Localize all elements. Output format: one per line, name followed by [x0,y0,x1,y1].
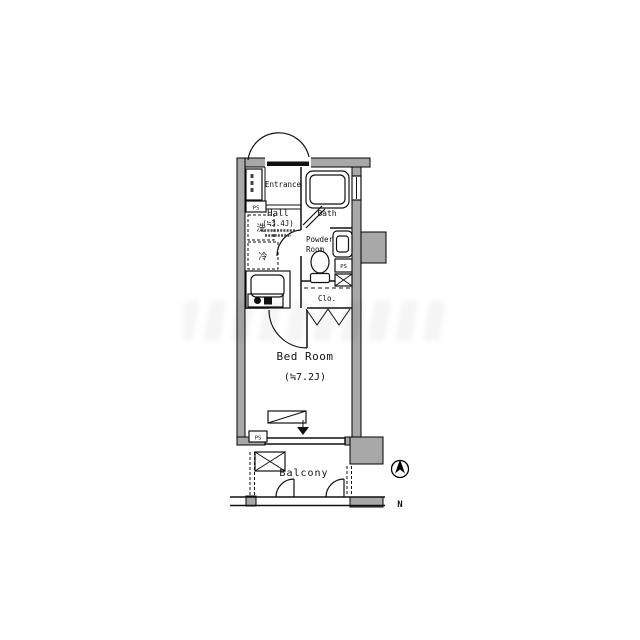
stove-burner-icon [254,297,261,304]
balcony-partition-left [276,479,294,497]
toilet-tank [311,274,330,283]
south-window [265,438,345,444]
bedroom-counter-diagonal [268,411,306,423]
closet-door-left [306,309,328,325]
bathtub-inner [310,175,345,204]
wall-left [237,158,245,445]
fridge-space-label: 冷 [258,251,267,263]
room-labels: Entrance Hall (≒3.4J) Bath Powder Room C… [261,180,337,479]
pipe-space-label-balcony: PS [255,436,262,442]
window-marker-icon [297,427,309,435]
wall-neighbor-block [350,437,383,464]
vanity [333,231,352,257]
floor-plan-drawing: PS 洗 冷 PS PS [0,0,640,640]
bedroom-label: Bed Room [277,350,334,363]
pipe-space-label-right: PS [340,264,347,270]
closet-label: Clo. [318,294,336,303]
closet-door-right [328,309,350,325]
kitchen-fixtures: 洗 冷 [246,215,290,308]
bedroom-size-label: (≒7.2J) [284,372,326,383]
hall-size-label: (≒3.4J) [262,219,294,228]
shoe-box-text-mark [251,181,254,185]
powder-room-label-2: Room [306,245,325,254]
pipe-space-label-left: PS [253,206,260,212]
wall-right [352,167,361,437]
bathtub-outer [306,171,349,208]
entrance-door-arc [248,133,309,160]
bath-label: Bath [317,209,336,218]
powder-room-label-1: Powder [306,235,334,244]
compass-north-label: N [397,500,402,510]
shoe-box-text-mark [251,174,254,178]
balcony-label: Balcony [279,468,328,479]
entrance-label: Entrance [265,180,302,189]
stove-grill-icon [264,297,272,305]
entrance-door-leaf [267,162,309,167]
bedroom-fixtures: PS [249,411,345,444]
bedroom-door-arc [269,310,307,348]
floor-plan-page: PS 洗 冷 PS PS [0,0,640,640]
shoe-box-text-mark [251,188,254,192]
compass: N [392,460,409,511]
wall-right-pillar [361,232,386,263]
shoe-box [246,169,262,200]
powder-door-arc [277,230,301,256]
toilet-bowl [311,251,329,273]
balcony-partition-right [326,479,344,497]
entrance-fixtures: PS [246,169,266,212]
hall-label: Hall [267,209,289,219]
